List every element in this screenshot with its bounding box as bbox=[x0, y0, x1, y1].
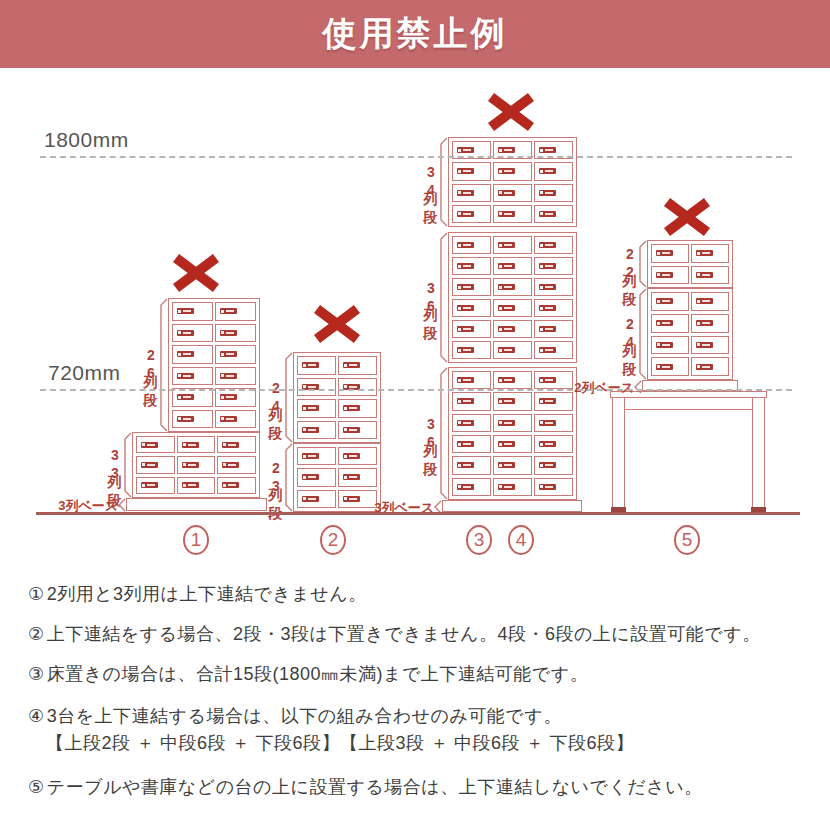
locker-door bbox=[493, 205, 532, 223]
lock-keyhole bbox=[458, 485, 461, 488]
lock-keyhole bbox=[178, 331, 181, 334]
lock-badge bbox=[539, 484, 556, 490]
lock-keyhole bbox=[223, 484, 226, 487]
locker-unit bbox=[647, 288, 733, 380]
locker-door bbox=[691, 357, 729, 376]
locker-door bbox=[493, 456, 532, 474]
lock-nameplate bbox=[188, 444, 196, 446]
stack-number-badge: 2 bbox=[320, 525, 346, 555]
lock-keyhole bbox=[458, 349, 461, 352]
base-chevron bbox=[634, 380, 642, 394]
locker-door bbox=[493, 435, 532, 453]
locker-door bbox=[215, 410, 256, 429]
note-combination-line: 【上段2段 ＋ 中段6段 ＋ 下段6段】【上段3段 ＋ 中段6段 ＋ 下段6段】 bbox=[46, 731, 634, 755]
note-text: 上下連結をする場合、2段・3段は下置きできません。4段・6段の上に設置可能です。 bbox=[47, 624, 761, 644]
table-right-leg bbox=[752, 397, 765, 511]
lock-nameplate bbox=[226, 396, 234, 398]
lock-badge bbox=[656, 272, 673, 278]
lock-nameplate bbox=[662, 274, 670, 276]
lock-badge bbox=[696, 298, 713, 304]
lock-badge bbox=[220, 351, 237, 357]
locker-unit bbox=[132, 432, 260, 498]
locker-door bbox=[534, 184, 573, 202]
lock-keyhole bbox=[540, 400, 543, 403]
locker-door bbox=[452, 435, 491, 453]
lock-badge bbox=[656, 320, 673, 326]
lock-badge bbox=[539, 242, 556, 248]
lock-nameplate bbox=[463, 443, 471, 445]
lock-nameplate bbox=[504, 400, 512, 402]
lock-nameplate bbox=[349, 455, 357, 457]
lock-nameplate bbox=[545, 464, 553, 466]
stack-number-badge: 5 bbox=[674, 525, 700, 555]
lock-nameplate bbox=[463, 149, 471, 151]
lock-nameplate bbox=[463, 265, 471, 267]
lock-keyhole bbox=[458, 149, 461, 152]
lock-nameplate bbox=[183, 396, 191, 398]
lock-badge bbox=[457, 190, 474, 196]
lock-badge bbox=[457, 263, 474, 269]
unit-size-label: 2列2段 bbox=[621, 240, 639, 288]
lock-keyhole bbox=[344, 385, 347, 388]
lock-badge bbox=[177, 308, 194, 314]
lock-keyhole bbox=[458, 443, 461, 446]
lock-keyhole bbox=[540, 464, 543, 467]
lock-nameplate bbox=[147, 444, 155, 446]
lock-badge bbox=[343, 496, 360, 502]
lock-nameplate bbox=[463, 464, 471, 466]
lock-badge bbox=[539, 168, 556, 174]
lock-nameplate bbox=[349, 364, 357, 366]
locker-door bbox=[534, 414, 573, 432]
table-apron-line bbox=[625, 409, 752, 410]
lock-badge bbox=[457, 462, 474, 468]
unit-brace bbox=[439, 232, 448, 363]
lock-keyhole bbox=[499, 328, 502, 331]
lock-badge bbox=[539, 284, 556, 290]
lock-nameplate bbox=[702, 344, 710, 346]
lock-badge bbox=[302, 496, 319, 502]
note-number: ③ bbox=[28, 664, 45, 684]
lock-nameplate bbox=[308, 498, 316, 500]
locker-door bbox=[172, 345, 213, 364]
note-number: ② bbox=[28, 624, 45, 644]
lock-keyhole bbox=[540, 485, 543, 488]
lock-badge bbox=[457, 305, 474, 311]
lock-badge bbox=[696, 342, 713, 348]
lock-badge bbox=[498, 484, 515, 490]
lock-keyhole bbox=[499, 349, 502, 352]
lock-badge bbox=[457, 168, 474, 174]
lock-nameplate bbox=[188, 484, 196, 486]
lock-badge bbox=[498, 462, 515, 468]
lock-keyhole bbox=[303, 385, 306, 388]
lock-nameplate bbox=[545, 443, 553, 445]
lock-keyhole bbox=[303, 407, 306, 410]
note-text: 2列用と3列用は上下連結できません。 bbox=[47, 584, 367, 604]
locker-door bbox=[691, 314, 729, 333]
prohibited-x-mark bbox=[315, 304, 359, 344]
lock-nameplate bbox=[545, 379, 553, 381]
locker-door bbox=[452, 205, 491, 223]
locker-door bbox=[452, 299, 491, 317]
locker-door bbox=[691, 292, 729, 311]
base-label: 2列ベース bbox=[574, 379, 634, 397]
locker-door bbox=[691, 244, 729, 263]
lock-keyhole bbox=[221, 353, 224, 356]
lock-keyhole bbox=[183, 484, 186, 487]
lock-keyhole bbox=[178, 353, 181, 356]
lock-badge bbox=[343, 453, 360, 459]
lock-badge bbox=[220, 308, 237, 314]
unit-brace bbox=[439, 367, 448, 500]
lock-keyhole bbox=[458, 379, 461, 382]
lock-keyhole bbox=[657, 322, 660, 325]
lock-keyhole bbox=[221, 310, 224, 313]
note-number: ① bbox=[28, 584, 45, 604]
lock-nameplate bbox=[463, 379, 471, 381]
lock-badge bbox=[343, 362, 360, 368]
locker-unit bbox=[448, 232, 577, 363]
lock-keyhole bbox=[540, 379, 543, 382]
lock-badge bbox=[498, 420, 515, 426]
locker-door bbox=[338, 421, 377, 440]
lock-nameplate bbox=[463, 170, 471, 172]
locker-unit bbox=[293, 352, 381, 443]
note-item: ⑤テーブルや書庫などの台の上に設置する場合は、上下連結しないでください。 bbox=[28, 775, 703, 799]
lock-keyhole bbox=[458, 464, 461, 467]
unit-brace bbox=[439, 137, 448, 227]
locker-door bbox=[217, 477, 256, 494]
note-text: 3台を上下連結する場合は、以下の組み合わせのみ可能です。 bbox=[47, 706, 562, 726]
lock-badge bbox=[498, 147, 515, 153]
lock-nameplate bbox=[226, 418, 234, 420]
locker-door bbox=[172, 302, 213, 321]
lock-keyhole bbox=[540, 443, 543, 446]
locker-door bbox=[338, 490, 377, 508]
locker-door bbox=[534, 278, 573, 296]
locker-door bbox=[452, 414, 491, 432]
unit-size-label: 3列6段 bbox=[422, 367, 440, 500]
lock-badge bbox=[141, 442, 158, 448]
lock-nameplate bbox=[308, 455, 316, 457]
lock-keyhole bbox=[499, 286, 502, 289]
lock-keyhole bbox=[221, 396, 224, 399]
lock-keyhole bbox=[499, 421, 502, 424]
unit-brace bbox=[284, 352, 293, 443]
locker-door bbox=[177, 456, 216, 473]
lock-nameplate bbox=[545, 286, 553, 288]
lock-badge bbox=[696, 364, 713, 370]
locker-door bbox=[493, 299, 532, 317]
lock-badge bbox=[220, 330, 237, 336]
locker-door bbox=[493, 414, 532, 432]
stack-number-badge: 3 bbox=[466, 525, 492, 555]
lock-badge bbox=[539, 462, 556, 468]
locker-door bbox=[452, 320, 491, 338]
prohibited-x-mark bbox=[174, 253, 218, 293]
lock-keyhole bbox=[499, 191, 502, 194]
lock-keyhole bbox=[499, 212, 502, 215]
stack-number-badge: 1 bbox=[183, 525, 209, 555]
locker-door bbox=[338, 378, 377, 397]
lock-nameplate bbox=[662, 322, 670, 324]
lock-keyhole bbox=[221, 331, 224, 334]
unit-brace bbox=[123, 432, 132, 498]
lock-badge bbox=[302, 427, 319, 433]
lock-nameplate bbox=[504, 486, 512, 488]
lock-keyhole bbox=[697, 273, 700, 276]
unit-size-label: 3列3段 bbox=[106, 432, 124, 498]
lock-nameplate bbox=[349, 429, 357, 431]
note-item: ①2列用と3列用は上下連結できません。 bbox=[28, 582, 367, 606]
lock-nameplate bbox=[308, 364, 316, 366]
lock-badge bbox=[498, 441, 515, 447]
lock-badge bbox=[457, 347, 474, 353]
unit-brace bbox=[284, 443, 293, 512]
lock-nameplate bbox=[463, 192, 471, 194]
locker-door bbox=[297, 378, 336, 397]
lock-keyhole bbox=[697, 300, 700, 303]
lock-badge bbox=[498, 326, 515, 332]
lock-nameplate bbox=[463, 400, 471, 402]
lock-nameplate bbox=[504, 349, 512, 351]
lock-keyhole bbox=[499, 379, 502, 382]
lock-nameplate bbox=[147, 484, 155, 486]
locker-door bbox=[136, 456, 175, 473]
locker-door bbox=[177, 436, 216, 453]
lock-nameplate bbox=[228, 464, 236, 466]
lock-keyhole bbox=[697, 365, 700, 368]
lock-nameplate bbox=[504, 443, 512, 445]
lock-badge bbox=[539, 305, 556, 311]
locker-door bbox=[534, 320, 573, 338]
unit-size-label: 2列6段 bbox=[142, 298, 160, 432]
lock-nameplate bbox=[545, 307, 553, 309]
locker-door bbox=[177, 477, 216, 494]
lock-keyhole bbox=[540, 149, 543, 152]
locker-door bbox=[297, 356, 336, 375]
locker-door bbox=[493, 320, 532, 338]
lock-badge bbox=[498, 347, 515, 353]
lock-nameplate bbox=[349, 386, 357, 388]
lock-keyhole bbox=[178, 310, 181, 313]
lock-badge bbox=[141, 482, 158, 488]
locker-door bbox=[217, 456, 256, 473]
lock-keyhole bbox=[540, 265, 543, 268]
lock-nameplate bbox=[463, 486, 471, 488]
lock-nameplate bbox=[183, 375, 191, 377]
lock-nameplate bbox=[504, 170, 512, 172]
locker-door bbox=[493, 257, 532, 275]
lock-keyhole bbox=[223, 443, 226, 446]
lock-nameplate bbox=[504, 379, 512, 381]
lock-nameplate bbox=[702, 366, 710, 368]
lock-nameplate bbox=[545, 265, 553, 267]
locker-door bbox=[452, 478, 491, 496]
lock-badge bbox=[182, 442, 199, 448]
lock-badge bbox=[539, 147, 556, 153]
lock-badge bbox=[457, 147, 474, 153]
lock-nameplate bbox=[504, 192, 512, 194]
lock-badge bbox=[539, 211, 556, 217]
locker-door bbox=[493, 341, 532, 359]
lock-keyhole bbox=[458, 286, 461, 289]
lock-badge bbox=[539, 441, 556, 447]
lock-nameplate bbox=[662, 300, 670, 302]
lock-badge bbox=[343, 405, 360, 411]
locker-door bbox=[651, 244, 689, 263]
lock-keyhole bbox=[657, 300, 660, 303]
lock-badge bbox=[539, 190, 556, 196]
lock-badge bbox=[457, 441, 474, 447]
lock-badge bbox=[457, 284, 474, 290]
lock-keyhole bbox=[499, 400, 502, 403]
lock-nameplate bbox=[702, 300, 710, 302]
locker-door bbox=[338, 468, 377, 486]
lock-keyhole bbox=[344, 476, 347, 479]
unit-size-label: 3列4段 bbox=[422, 137, 440, 227]
lock-keyhole bbox=[540, 307, 543, 310]
lock-badge bbox=[177, 351, 194, 357]
locker-door bbox=[534, 236, 573, 254]
lock-nameplate bbox=[504, 422, 512, 424]
locker-base bbox=[442, 500, 582, 512]
locker-door bbox=[651, 292, 689, 311]
lock-nameplate bbox=[463, 422, 471, 424]
lock-keyhole bbox=[657, 343, 660, 346]
lock-nameplate bbox=[545, 192, 553, 194]
lock-badge bbox=[539, 263, 556, 269]
locker-door bbox=[215, 324, 256, 343]
locker-unit bbox=[293, 443, 381, 512]
lock-badge bbox=[539, 326, 556, 332]
lock-nameplate bbox=[504, 286, 512, 288]
lock-nameplate bbox=[349, 498, 357, 500]
locker-door bbox=[297, 490, 336, 508]
lock-nameplate bbox=[228, 444, 236, 446]
locker-door bbox=[215, 367, 256, 386]
locker-door bbox=[534, 456, 573, 474]
lock-keyhole bbox=[178, 396, 181, 399]
locker-door bbox=[215, 345, 256, 364]
locker-door bbox=[297, 468, 336, 486]
lock-keyhole bbox=[344, 497, 347, 500]
lock-keyhole bbox=[223, 463, 226, 466]
unit-size-label: 2列4段 bbox=[267, 352, 285, 443]
lock-keyhole bbox=[142, 443, 145, 446]
lock-badge bbox=[539, 377, 556, 383]
lock-badge bbox=[457, 484, 474, 490]
lock-nameplate bbox=[226, 353, 234, 355]
lock-nameplate bbox=[228, 484, 236, 486]
lock-badge bbox=[220, 373, 237, 379]
lock-keyhole bbox=[458, 421, 461, 424]
locker-door bbox=[452, 236, 491, 254]
lock-nameplate bbox=[504, 464, 512, 466]
lock-nameplate bbox=[702, 274, 710, 276]
lock-nameplate bbox=[545, 149, 553, 151]
locker-unit bbox=[647, 240, 733, 288]
locker-door bbox=[452, 341, 491, 359]
lock-badge bbox=[220, 416, 237, 422]
lock-keyhole bbox=[344, 428, 347, 431]
lock-badge bbox=[696, 250, 713, 256]
locker-door bbox=[534, 205, 573, 223]
lock-keyhole bbox=[221, 417, 224, 420]
locker-door bbox=[651, 357, 689, 376]
lock-badge bbox=[498, 263, 515, 269]
locker-door bbox=[297, 421, 336, 440]
locker-door bbox=[651, 314, 689, 333]
note-item: ④3台を上下連結する場合は、以下の組み合わせのみ可能です。 bbox=[28, 704, 562, 728]
lock-badge bbox=[696, 272, 713, 278]
lock-keyhole bbox=[657, 252, 660, 255]
prohibited-x-mark bbox=[665, 197, 709, 237]
locker-door bbox=[338, 399, 377, 418]
lock-badge bbox=[457, 377, 474, 383]
unit-size-label: 2列4段 bbox=[621, 288, 639, 380]
lock-keyhole bbox=[697, 322, 700, 325]
lock-keyhole bbox=[183, 463, 186, 466]
lock-badge bbox=[302, 362, 319, 368]
locker-door bbox=[338, 356, 377, 375]
lock-badge bbox=[141, 462, 158, 468]
note-number: ⑤ bbox=[28, 777, 45, 797]
lock-keyhole bbox=[344, 407, 347, 410]
lock-keyhole bbox=[499, 244, 502, 247]
lock-keyhole bbox=[344, 455, 347, 458]
lock-keyhole bbox=[142, 484, 145, 487]
lock-nameplate bbox=[545, 400, 553, 402]
lock-keyhole bbox=[458, 212, 461, 215]
lock-keyhole bbox=[657, 273, 660, 276]
lock-keyhole bbox=[178, 374, 181, 377]
lock-nameplate bbox=[504, 265, 512, 267]
note-item: ②上下連結をする場合、2段・3段は下置きできません。4段・6段の上に設置可能です… bbox=[28, 622, 761, 646]
lock-nameplate bbox=[504, 213, 512, 215]
locker-door bbox=[452, 371, 491, 389]
lock-keyhole bbox=[499, 170, 502, 173]
lock-nameplate bbox=[183, 353, 191, 355]
note-item: ③床置きの場合は、合計15段(1800㎜未満)まで上下連結可能です。 bbox=[28, 662, 588, 686]
locker-door bbox=[297, 399, 336, 418]
lock-keyhole bbox=[303, 364, 306, 367]
lock-badge bbox=[498, 211, 515, 217]
lock-badge bbox=[177, 330, 194, 336]
note-number: ④ bbox=[28, 706, 45, 726]
lock-badge bbox=[177, 373, 194, 379]
lock-nameplate bbox=[183, 418, 191, 420]
locker-door bbox=[452, 278, 491, 296]
unit-brace bbox=[159, 298, 168, 432]
lock-keyhole bbox=[303, 428, 306, 431]
locker-door bbox=[136, 477, 175, 494]
lock-nameplate bbox=[504, 307, 512, 309]
lock-nameplate bbox=[504, 328, 512, 330]
locker-door bbox=[493, 184, 532, 202]
lock-badge bbox=[343, 474, 360, 480]
locker-door bbox=[493, 162, 532, 180]
lock-nameplate bbox=[226, 332, 234, 334]
lock-nameplate bbox=[226, 375, 234, 377]
lock-badge bbox=[656, 298, 673, 304]
lock-keyhole bbox=[657, 365, 660, 368]
lock-keyhole bbox=[458, 265, 461, 268]
lock-nameplate bbox=[662, 252, 670, 254]
lock-badge bbox=[498, 284, 515, 290]
lock-keyhole bbox=[303, 497, 306, 500]
